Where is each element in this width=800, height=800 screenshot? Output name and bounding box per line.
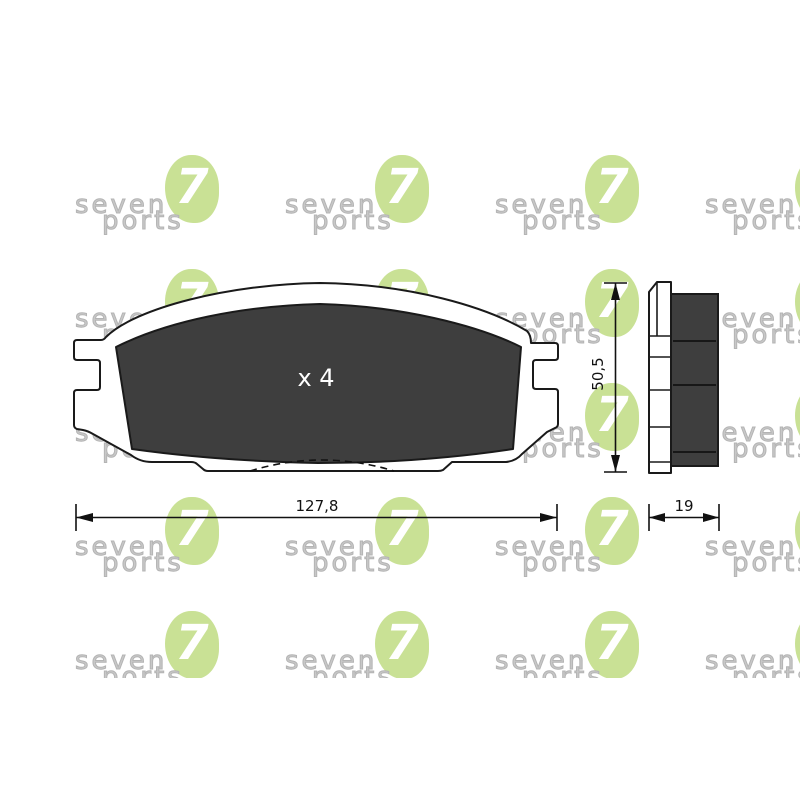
height-dimension: [604, 283, 627, 472]
side-friction-material: [671, 294, 718, 466]
front-view: x 4: [74, 283, 558, 471]
brake-pad-drawing-canvas: 7sevenports7sevenports7sevenports7sevenp…: [0, 0, 800, 800]
depth-dimension-label: 19: [674, 497, 693, 515]
width-dimension-label: 127,8: [296, 497, 339, 515]
technical-drawing: x 4 127,8: [0, 0, 800, 800]
side-backing-plate: [649, 282, 671, 473]
quantity-label: x 4: [297, 364, 334, 392]
side-view: [649, 282, 718, 473]
height-dimension-label: 50,5: [589, 357, 607, 390]
